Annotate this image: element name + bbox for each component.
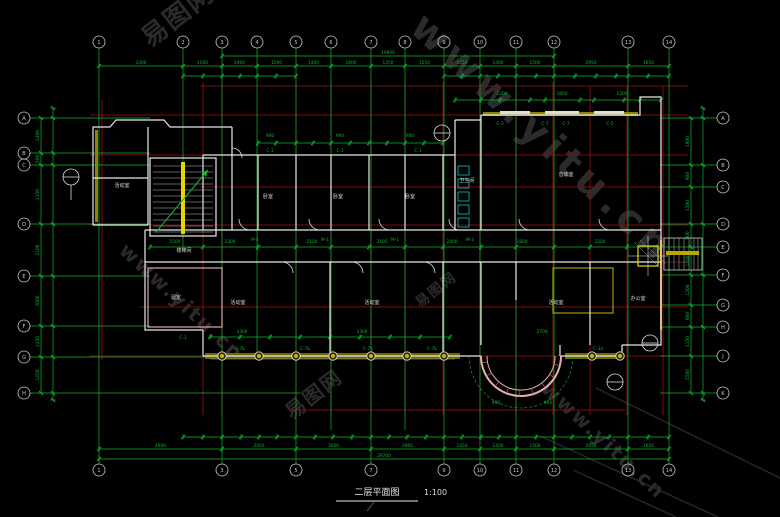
- dim-label: 2900: [402, 443, 413, 449]
- dim-label: 1900: [685, 136, 691, 147]
- dim-label: 2000: [35, 295, 41, 306]
- axis-label: 1: [97, 40, 100, 46]
- axis-label: 4: [255, 40, 258, 46]
- dim-label: 1450: [457, 60, 468, 66]
- axis-label: B: [721, 163, 725, 169]
- dim-label: 2950: [586, 443, 597, 449]
- dim-label: 1500: [530, 60, 541, 66]
- room-label: 办公室: [630, 295, 645, 302]
- element-tag: C-3: [496, 121, 504, 127]
- dim-label: 1200: [685, 284, 691, 295]
- axis-label: E: [721, 245, 724, 251]
- element-tag: M-1: [321, 237, 329, 243]
- dim-text: 1800: [557, 91, 568, 97]
- axis-label: 6: [329, 40, 332, 46]
- left-wall-band: [95, 130, 98, 222]
- room-label: 活动室: [230, 299, 245, 306]
- balcony-column: [292, 352, 300, 360]
- axis-label: 12: [551, 40, 557, 46]
- dim-text: 3300: [357, 329, 368, 335]
- axis-label: E: [22, 274, 25, 280]
- balcony-column: [367, 352, 375, 360]
- room-label: 寝室: [171, 294, 181, 301]
- room-label: 卫生间: [459, 177, 474, 184]
- element-tag: C-7: [541, 121, 549, 127]
- axis-label: G: [22, 355, 26, 361]
- dim-label: 1350: [383, 60, 394, 66]
- dim-label: 2950: [586, 60, 597, 66]
- axis-label: D: [22, 222, 26, 228]
- dim-text: 900: [406, 133, 414, 139]
- dim-label: 1400: [35, 130, 41, 141]
- axis-label: C: [22, 163, 26, 169]
- dim-text: 900: [492, 400, 500, 406]
- axis-label: 7: [369, 468, 372, 474]
- dim-text: 3300: [595, 239, 606, 245]
- room-label: 卧室: [405, 193, 415, 200]
- dim-text: 2700: [537, 329, 548, 335]
- axis-label: D: [721, 222, 725, 228]
- dim-text: 1500: [170, 239, 181, 245]
- axis-label: 5: [294, 468, 297, 474]
- room-label: 卧室: [333, 193, 343, 200]
- window-strip: [594, 111, 624, 114]
- axis-label: 11: [513, 40, 519, 46]
- dim-label: 3000: [328, 443, 339, 449]
- dim-label: 1500: [685, 369, 691, 380]
- dim-label: 1400: [493, 60, 504, 66]
- balcony-column: [255, 352, 263, 360]
- axis-label: 14: [666, 40, 672, 46]
- dim-label: 1450: [35, 369, 41, 380]
- axis-label: 2: [181, 40, 184, 46]
- dim-label: 19800: [381, 50, 395, 56]
- cad-floorplan-screenshot: 易图网www.yitu.cnwww.yitu.cn易图网www.yitu.cn易…: [0, 0, 780, 517]
- room-label: 楼梯间: [176, 247, 191, 254]
- axis-label: 10: [477, 468, 483, 474]
- element-tag: M-1: [251, 237, 259, 243]
- balcony-column: [218, 352, 226, 360]
- dim-text: 1200: [497, 91, 508, 97]
- dim-label: 500: [35, 155, 41, 163]
- balcony-column: [403, 352, 411, 360]
- element-tag: C-1: [336, 148, 344, 154]
- dim-text: 3300: [225, 239, 236, 245]
- dim-label: 1650: [643, 443, 654, 449]
- room-label: 活动室: [364, 299, 379, 306]
- dim-label: 900: [685, 312, 691, 320]
- dim-label: 1400: [493, 443, 504, 449]
- element-tag: C-7: [562, 121, 570, 127]
- element-tag: C-1: [266, 148, 274, 154]
- element-tag: C-7b: [427, 346, 437, 352]
- dim-label: 29700: [377, 453, 391, 459]
- balcony-column: [329, 352, 337, 360]
- element-tag: M-2: [466, 237, 474, 243]
- dim-label: 1150: [685, 336, 691, 347]
- element-tag: M-1: [391, 237, 399, 243]
- dim-label: 1500: [685, 200, 691, 211]
- dim-label: 1400: [234, 60, 245, 66]
- axis-label: 9: [442, 40, 445, 46]
- axis-label: 8: [403, 40, 406, 46]
- dim-label: 1600: [346, 60, 357, 66]
- axis-label: 13: [625, 40, 631, 46]
- dim-label: 1100: [685, 255, 691, 266]
- axis-label: 9: [442, 468, 445, 474]
- dim-text: 1800: [517, 239, 528, 245]
- window-strip: [545, 111, 579, 114]
- room-label: 活动室: [548, 299, 563, 306]
- axis-label: 13: [625, 468, 631, 474]
- room-label: 活动室: [114, 182, 129, 189]
- element-tag: C-7b: [300, 346, 310, 352]
- dim-text: 900: [266, 133, 274, 139]
- dim-text: 2100: [307, 239, 318, 245]
- element-tag: C-1: [179, 335, 187, 341]
- axis-label: H: [721, 325, 725, 331]
- dim-label: 1250: [35, 336, 41, 347]
- drawing-title: 二层平面图: [354, 487, 399, 498]
- dim-text: 900: [336, 133, 344, 139]
- dim-label: 1500: [197, 60, 208, 66]
- balcony-column: [616, 352, 624, 360]
- element-tag: C-1: [414, 148, 422, 154]
- drawing-scale: 1:100: [424, 488, 447, 497]
- dim-label: 2350: [35, 189, 41, 200]
- axis-label: G: [721, 303, 725, 309]
- dim-label: 900: [685, 172, 691, 180]
- element-tag: C-7b: [235, 346, 245, 352]
- axis-label: A: [22, 116, 26, 122]
- axis-label: F: [722, 273, 725, 279]
- axis-label: 5: [294, 40, 297, 46]
- element-tag: C-5: [606, 121, 614, 127]
- dim-text: 1200: [617, 91, 628, 97]
- axis-label: 1: [97, 468, 100, 474]
- dim-text: 3300: [237, 329, 248, 335]
- element-tag: C-3a: [593, 346, 603, 352]
- axis-label: 3: [220, 468, 223, 474]
- axis-label: 3: [220, 40, 223, 46]
- axis-label: C: [721, 185, 725, 191]
- dim-label: 2100: [35, 244, 41, 255]
- balcony-column: [440, 352, 448, 360]
- room-label: 卧室: [263, 193, 273, 200]
- axis-label: 11: [513, 468, 519, 474]
- axis-label: 14: [666, 468, 672, 474]
- dim-label: 1650: [643, 60, 654, 66]
- dim-label: 1550: [419, 60, 430, 66]
- floorplan-canvas: 易图网www.yitu.cnwww.yitu.cn易图网www.yitu.cn易…: [0, 0, 780, 517]
- balcony-column: [588, 352, 596, 360]
- dim-label: 4900: [155, 443, 166, 449]
- dim-label: 1500: [271, 60, 282, 66]
- element-tag: C-7b: [363, 346, 373, 352]
- axis-label: J: [721, 354, 723, 360]
- dim-text: 900: [544, 400, 552, 406]
- axis-label: 10: [477, 40, 483, 46]
- room-label: 音体室: [558, 171, 573, 178]
- dim-label: 1400: [308, 60, 319, 66]
- dim-label: 1450: [457, 443, 468, 449]
- axis-label: 12: [551, 468, 557, 474]
- dim-label: 1500: [530, 443, 541, 449]
- dim-text: 2100: [377, 239, 388, 245]
- axis-label: A: [721, 116, 725, 122]
- axis-label: B: [22, 151, 26, 157]
- dim-text: 2400: [447, 239, 458, 245]
- axis-label: 7: [369, 40, 372, 46]
- dim-label: 2950: [254, 443, 265, 449]
- dim-label: 3300: [136, 60, 147, 66]
- window-strip: [500, 111, 530, 114]
- axis-label: F: [23, 324, 26, 330]
- axis-label: H: [22, 391, 26, 397]
